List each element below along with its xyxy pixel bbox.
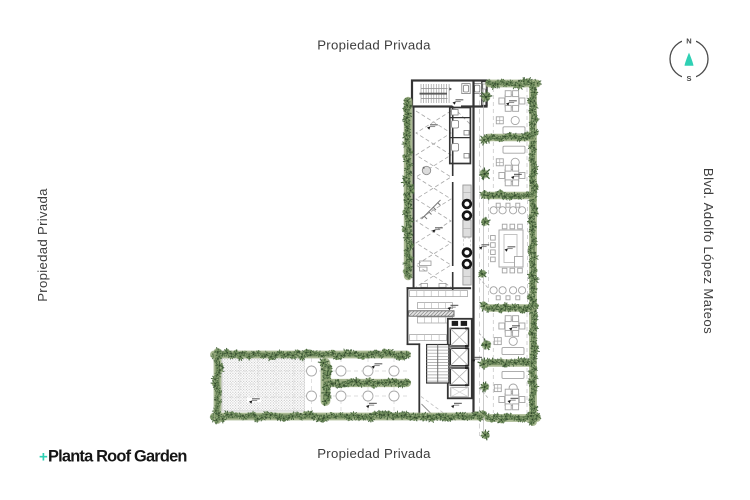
svg-text:Planta Roof Garden: Planta Roof Garden	[48, 448, 187, 466]
svg-text:+: +	[39, 449, 48, 466]
svg-text:N: N	[686, 37, 691, 46]
svg-text:S: S	[686, 74, 691, 83]
svg-text:Propiedad Privada: Propiedad Privada	[317, 38, 431, 53]
svg-text:Propiedad Privada: Propiedad Privada	[35, 188, 50, 302]
svg-text:Blvd. Adolfo López Mateos: Blvd. Adolfo López Mateos	[701, 168, 716, 334]
svg-text:Propiedad Privada: Propiedad Privada	[317, 446, 431, 461]
